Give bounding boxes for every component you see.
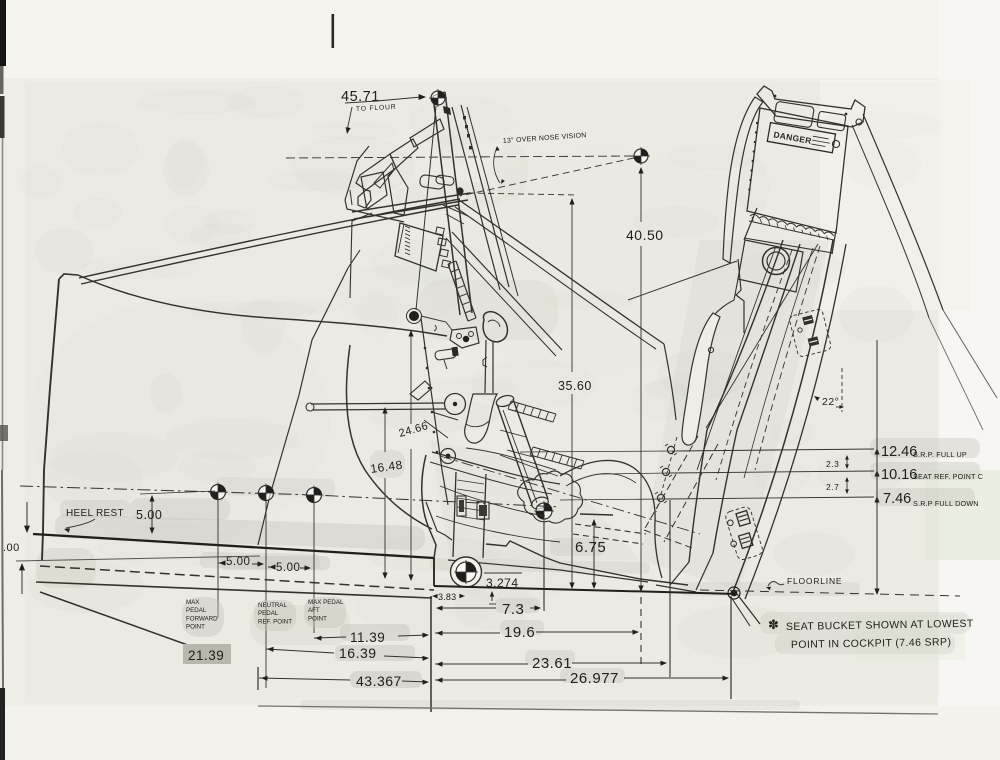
- svg-text:SEAT REF. POINT C: SEAT REF. POINT C: [913, 472, 983, 481]
- svg-text:REF. POINT: REF. POINT: [258, 618, 292, 625]
- svg-text:5.00: 5.00: [136, 508, 162, 522]
- svg-text:26.977: 26.977: [570, 670, 619, 687]
- svg-text:PEDAL: PEDAL: [258, 610, 279, 617]
- svg-text:35.60: 35.60: [558, 379, 592, 393]
- svg-text:40.50: 40.50: [626, 227, 664, 243]
- svg-text:POINT: POINT: [186, 624, 205, 631]
- svg-text:AFT: AFT: [308, 607, 320, 614]
- svg-text:3.83: 3.83: [438, 592, 456, 602]
- svg-text:PEDAL: PEDAL: [186, 607, 207, 614]
- svg-text:HEEL REST: HEEL REST: [66, 508, 124, 519]
- svg-text:MAX: MAX: [186, 599, 199, 606]
- svg-text:5.00: 5.00: [226, 556, 250, 568]
- svg-text:FORWARD: FORWARD: [186, 615, 218, 622]
- svg-text:21.39: 21.39: [188, 648, 224, 663]
- svg-text:FLOORLINE: FLOORLINE: [787, 576, 842, 586]
- svg-text:11.39: 11.39: [350, 630, 385, 645]
- svg-text:12.46: 12.46: [881, 444, 917, 460]
- svg-text:43.367: 43.367: [356, 673, 402, 689]
- svg-text:10.16: 10.16: [881, 467, 917, 483]
- svg-text:7.3: 7.3: [502, 601, 524, 618]
- svg-text:6.75: 6.75: [575, 539, 606, 556]
- svg-text:✽: ✽: [768, 617, 779, 632]
- svg-text:MAX PEDAL: MAX PEDAL: [308, 599, 344, 606]
- svg-text:19.6: 19.6: [504, 624, 535, 641]
- svg-text:2.7: 2.7: [826, 482, 839, 492]
- svg-text:2.3: 2.3: [826, 459, 839, 469]
- svg-text:S.R.P FULL DOWN: S.R.P FULL DOWN: [913, 499, 979, 508]
- svg-text:.00: .00: [3, 542, 20, 554]
- svg-text:23.61: 23.61: [532, 655, 572, 672]
- svg-text:22°: 22°: [822, 396, 839, 408]
- svg-text:16.39: 16.39: [339, 645, 377, 661]
- svg-text:POINT: POINT: [308, 615, 327, 622]
- svg-text:3.274: 3.274: [486, 576, 519, 590]
- svg-text:NEUTRAL: NEUTRAL: [258, 602, 287, 609]
- svg-text:S.R.P. FULL UP: S.R.P. FULL UP: [913, 450, 967, 459]
- svg-text:5.00: 5.00: [276, 562, 300, 574]
- svg-text:7.46: 7.46: [883, 491, 911, 507]
